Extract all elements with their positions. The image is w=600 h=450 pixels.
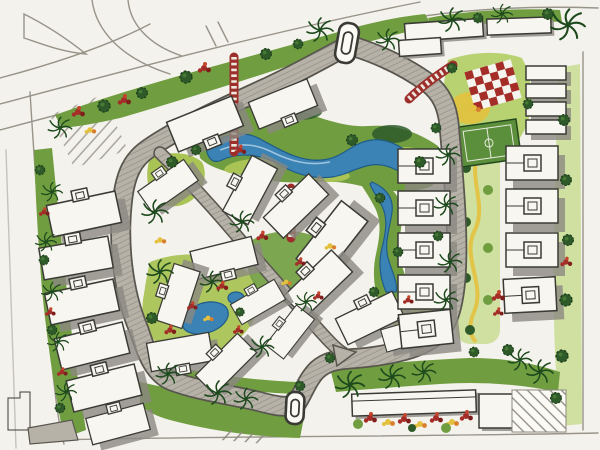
rowhouse-building xyxy=(506,146,565,189)
bush xyxy=(483,295,493,305)
rowhouse-building xyxy=(506,189,565,232)
bush xyxy=(483,185,493,195)
rowhouse-building xyxy=(506,233,565,276)
south-gate-oval xyxy=(285,392,305,425)
square-building xyxy=(479,394,516,431)
rowhouse-building xyxy=(398,191,457,234)
master-plan-drawing xyxy=(0,0,600,450)
rowhouse-building xyxy=(503,276,564,322)
bush xyxy=(483,243,493,253)
bush xyxy=(465,325,475,335)
scanned-site-plan xyxy=(0,0,600,450)
